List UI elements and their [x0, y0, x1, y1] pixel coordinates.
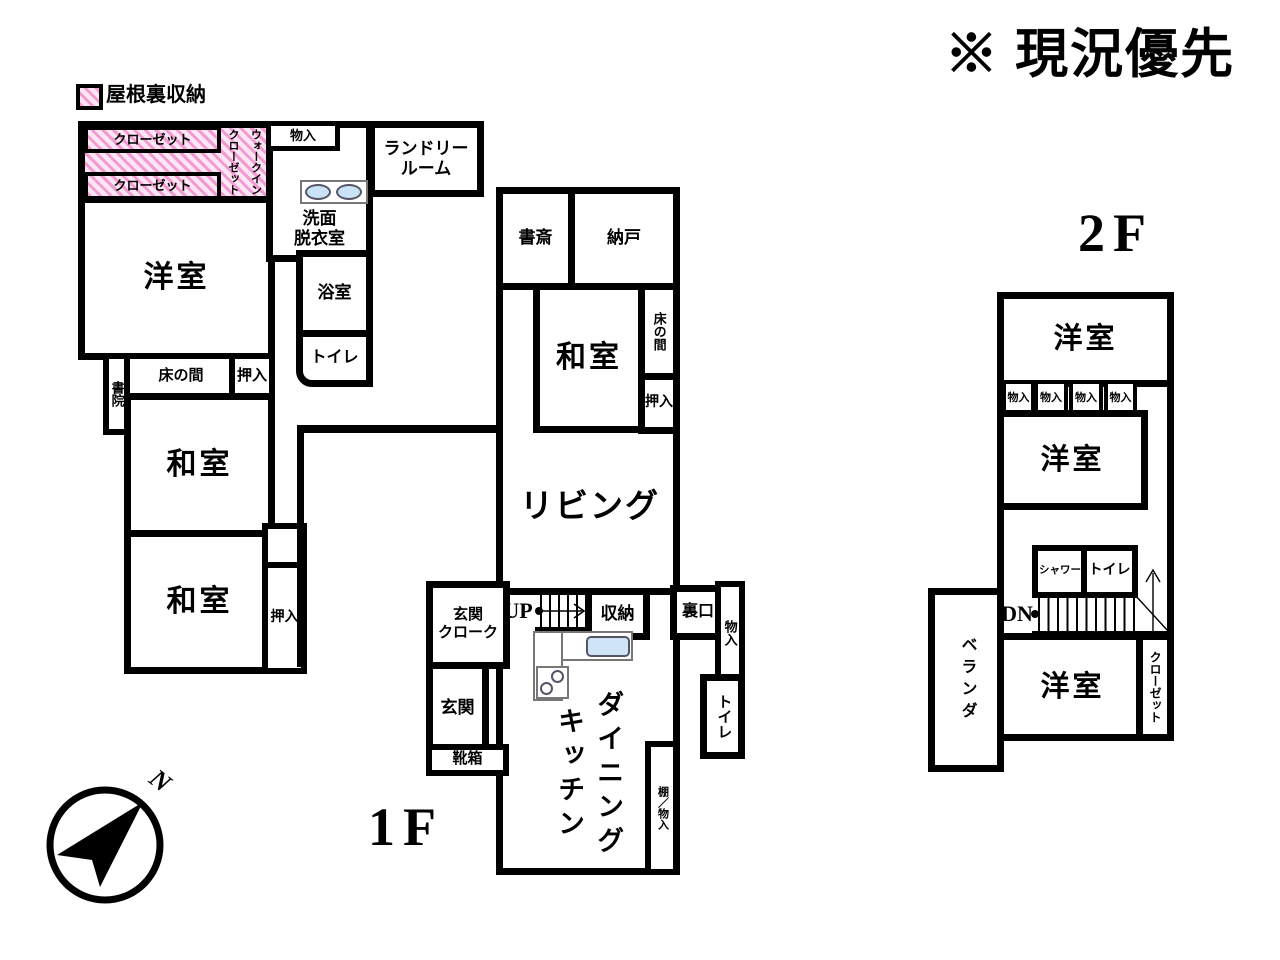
room-bathroom: 浴室	[296, 250, 373, 337]
sink-bowl-right	[336, 184, 362, 200]
room-storage-top: 物入	[266, 121, 340, 151]
legend-label: 屋根裏収納	[106, 84, 206, 108]
floorplan-canvas: ※ 現況優先 屋根裏収納 クローゼット クローゼット ウォークインクローゼット …	[0, 0, 1280, 960]
room-storage-tall: 物入	[715, 581, 745, 685]
room-walk-in-closet: ウォークインクローゼット	[219, 126, 269, 198]
stairs-down-label: DN	[999, 601, 1035, 627]
room-study: 書斎	[496, 187, 575, 290]
room-entrance: 玄関	[426, 662, 489, 755]
stove-burner-1	[551, 670, 564, 683]
room-japanese-c: 和室	[533, 283, 645, 433]
room-western-2f-c: 洋室	[997, 633, 1148, 741]
annotation-note: ※ 現況優先	[920, 18, 1260, 92]
floor1-title: 1F	[368, 796, 444, 858]
stairs-down-dot	[1031, 610, 1039, 618]
room-veranda: ベランダ	[928, 588, 1004, 772]
room-entrance-cloak: 玄関 クローク	[426, 581, 510, 669]
kitchen-sink	[586, 636, 630, 657]
legend-hatch-swatch	[76, 84, 103, 110]
room-living-label: リビング	[500, 483, 680, 531]
room-western-2f-a: 洋室	[997, 292, 1174, 387]
sink-bowl-left	[305, 184, 331, 200]
room-western-2f-b: 洋室	[997, 410, 1148, 510]
room-oshiire-c: 押入	[638, 373, 680, 434]
room-dining-kitchen-label: ダイニングキッチン	[546, 688, 630, 862]
wall-corridor-left	[297, 425, 304, 667]
room-toilet-b: トイレ	[700, 674, 745, 759]
room-japanese-b: 和室	[124, 530, 275, 674]
stairs-2f-treads	[1038, 598, 1138, 633]
floor2-title: 2F	[1078, 202, 1154, 264]
room-western-1f: 洋室	[78, 196, 275, 360]
room-shoe-box: 靴箱	[426, 744, 509, 776]
room-toilet-a: トイレ	[296, 330, 373, 387]
room-shelf-storage: 棚／物入	[645, 741, 679, 875]
compass-rose	[40, 780, 175, 910]
room-storeroom: 納戸	[568, 187, 680, 290]
legend-label-wrap: 屋根裏収納	[106, 82, 206, 110]
room-shower: シャワー	[1032, 545, 1088, 598]
stairs-down-arrow	[1125, 565, 1180, 640]
room-tokonoma-b: 床の間	[638, 283, 680, 380]
room-closet-a: クローゼット	[84, 126, 221, 153]
annotation-text: ※ 現況優先	[945, 24, 1235, 87]
room-laundry: ランドリー ルーム	[368, 121, 484, 197]
wall-corridor-top	[297, 425, 503, 433]
room-japanese-a: 和室	[124, 393, 275, 537]
room-closet-2f: クローゼット	[1136, 633, 1174, 741]
